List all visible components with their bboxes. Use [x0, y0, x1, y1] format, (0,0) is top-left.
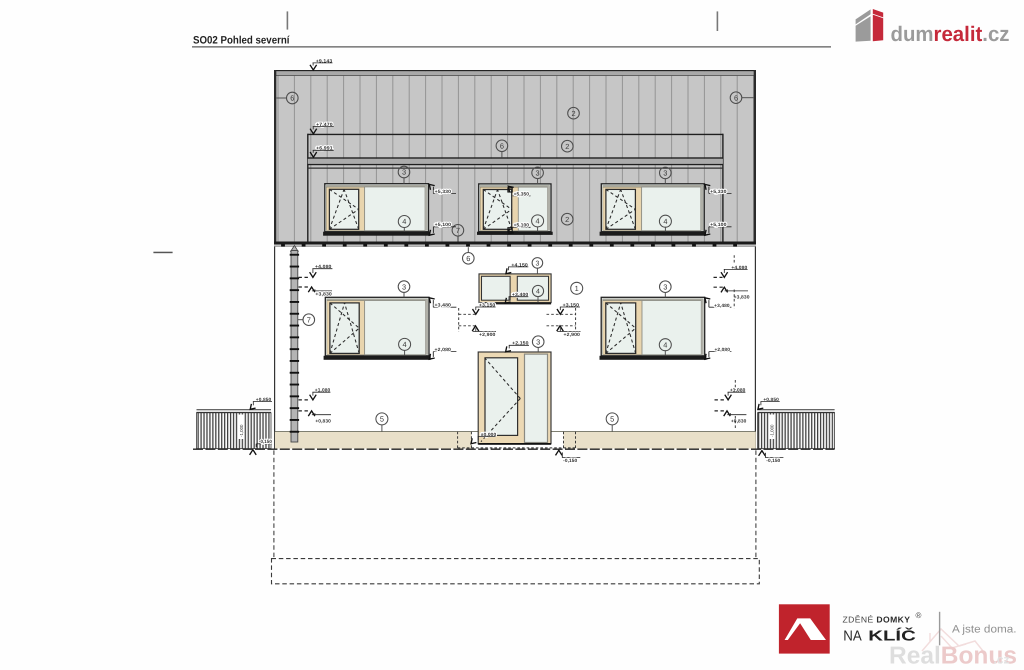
svg-text:6: 6 — [466, 254, 470, 263]
svg-text:-1,000: -1,000 — [239, 424, 244, 437]
svg-text:SO02 Pohled severní: SO02 Pohled severní — [193, 35, 290, 47]
svg-text:+3,830: +3,830 — [734, 294, 750, 299]
svg-text:-0,150: -0,150 — [259, 439, 272, 444]
svg-text:+5,100: +5,100 — [514, 223, 530, 228]
svg-text:+0,830: +0,830 — [315, 418, 331, 423]
svg-text:4: 4 — [536, 289, 540, 296]
svg-text:5: 5 — [380, 415, 384, 424]
svg-text:+5,100: +5,100 — [710, 222, 727, 227]
svg-text:+3,480: +3,480 — [714, 303, 730, 308]
svg-text:2: 2 — [571, 109, 575, 118]
svg-text:ZDĚNÉ DOMKY: ZDĚNÉ DOMKY — [843, 614, 911, 624]
svg-text:4: 4 — [663, 340, 667, 349]
svg-text:6: 6 — [734, 93, 738, 102]
svg-text:2: 2 — [565, 142, 569, 151]
svg-text:+2,080: +2,080 — [435, 347, 452, 352]
svg-text:.cz: .cz — [994, 653, 1010, 667]
svg-text:+5,330: +5,330 — [435, 189, 452, 194]
svg-text:NA: NA — [843, 629, 862, 645]
svg-text:3: 3 — [535, 260, 539, 267]
svg-text:6: 6 — [500, 141, 504, 150]
svg-text:-0,150: -0,150 — [563, 458, 577, 463]
svg-text:3: 3 — [536, 337, 540, 346]
svg-text:+2,080: +2,080 — [715, 347, 731, 352]
svg-text:KLÍČ: KLÍČ — [868, 628, 916, 645]
svg-text:4: 4 — [403, 340, 407, 349]
svg-text:3: 3 — [536, 168, 540, 177]
svg-text:+5,350: +5,350 — [514, 191, 530, 196]
svg-text:3: 3 — [402, 168, 406, 177]
svg-text:3: 3 — [663, 169, 667, 178]
svg-text:-0,150: -0,150 — [766, 458, 780, 463]
svg-text:6: 6 — [290, 94, 294, 103]
svg-text:A jste doma.: A jste doma. — [952, 623, 1017, 635]
svg-text:dumrealit.cz: dumrealit.cz — [891, 23, 1010, 46]
svg-text:+5,330: +5,330 — [710, 189, 727, 194]
svg-text:5: 5 — [610, 415, 614, 424]
svg-text:4: 4 — [536, 217, 540, 226]
svg-text:7: 7 — [307, 315, 311, 324]
svg-text:+3,830: +3,830 — [315, 291, 332, 296]
svg-text:+5,100: +5,100 — [435, 222, 452, 227]
svg-text:+2,900: +2,900 — [564, 332, 581, 337]
svg-text:2: 2 — [565, 215, 569, 224]
svg-text:-1,000: -1,000 — [770, 424, 775, 437]
svg-text:7: 7 — [456, 226, 460, 235]
svg-text:®: ® — [916, 611, 922, 620]
svg-text:+0,830: +0,830 — [731, 418, 747, 423]
svg-text:+3,480: +3,480 — [435, 303, 452, 308]
svg-text:4: 4 — [663, 217, 667, 226]
svg-text:3: 3 — [402, 282, 406, 291]
svg-text:+2,900: +2,900 — [479, 332, 496, 337]
svg-text:1: 1 — [575, 284, 579, 293]
svg-text:4: 4 — [402, 217, 406, 226]
svg-text:3: 3 — [663, 282, 667, 291]
